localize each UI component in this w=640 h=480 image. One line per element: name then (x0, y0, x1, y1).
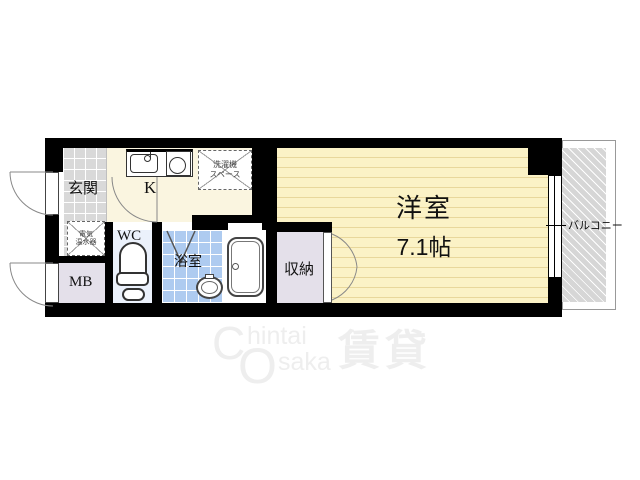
wall-wc-left (105, 222, 113, 303)
wall-right-bottom (548, 278, 562, 303)
wall-bottom (45, 303, 562, 317)
wall-tub-storage (266, 222, 277, 303)
main-room-size: 7.1帖 (354, 228, 494, 262)
wall-wc-right (152, 222, 162, 303)
watermark-chintai-kanji: 賃貸 (338, 317, 432, 378)
meter-box-label: MB (69, 274, 92, 291)
storage-door-panel (323, 232, 332, 303)
balcony-window-centerline (554, 176, 555, 277)
wall-top-left-corner (45, 138, 63, 172)
wall-storage-top (268, 222, 332, 232)
balcony-label: バルコニー (568, 217, 623, 233)
faucet-stem (150, 152, 151, 159)
toilet-seat-icon (116, 272, 149, 286)
stove-burner-icon (169, 157, 186, 174)
wall-top (45, 138, 562, 148)
balcony-window-tick (546, 225, 566, 226)
main-room-label: 洋室 7.1帖 (354, 188, 494, 262)
bathtub-drain-icon (232, 263, 239, 270)
wall-mb-separator (45, 256, 107, 263)
water-heater-label-line2: 温水器 (68, 239, 104, 247)
balcony-window (548, 175, 562, 278)
watermark-saka: saka (278, 348, 331, 377)
floorplan-page: { "floorplan": { "labels": { "genkan": "… (0, 0, 640, 480)
storage-label: 収納 (284, 258, 314, 279)
kitchen-label: K (144, 178, 156, 198)
wc-label: WC (117, 228, 141, 245)
water-heater-box: 電気 温水器 (67, 221, 105, 256)
entrance-door (45, 172, 59, 215)
wall-top-right-corner (528, 138, 562, 175)
water-heater-label-line1: 電気 (68, 231, 104, 239)
washbasin-inner (201, 281, 218, 294)
washer-space-label-line1: 洗濯機 (199, 160, 251, 170)
meter-box-door (45, 263, 59, 303)
washbasin-tap-icon (205, 274, 214, 279)
washing-machine-space-box: 洗濯機 スペース (198, 150, 252, 190)
watermark-letter-o: O (238, 337, 277, 395)
washer-space-label-line2: スペース (199, 170, 251, 180)
entrance-label: 玄関 (68, 177, 98, 198)
toilet-base-icon (122, 288, 145, 301)
wall-kitchen-room-column (252, 138, 277, 222)
bathroom-label: 浴室 (174, 251, 202, 271)
bathtub-top-frame (228, 223, 262, 230)
main-room-name: 洋室 (354, 188, 494, 225)
bathroom-door-opening (165, 222, 192, 230)
